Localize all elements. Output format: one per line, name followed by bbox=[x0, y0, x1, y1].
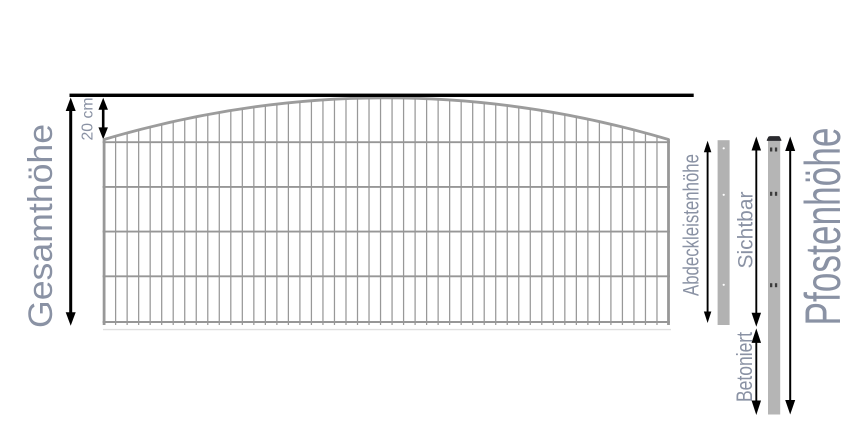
svg-text:20 cm: 20 cm bbox=[80, 98, 97, 141]
svg-text:Abdeckleistenhöhe: Abdeckleistenhöhe bbox=[678, 154, 703, 296]
svg-text:Pfostenhöhe: Pfostenhöhe bbox=[795, 128, 850, 326]
svg-text:Gesamthöhe: Gesamthöhe bbox=[22, 124, 60, 328]
svg-text:Sichtbar: Sichtbar bbox=[733, 192, 757, 269]
